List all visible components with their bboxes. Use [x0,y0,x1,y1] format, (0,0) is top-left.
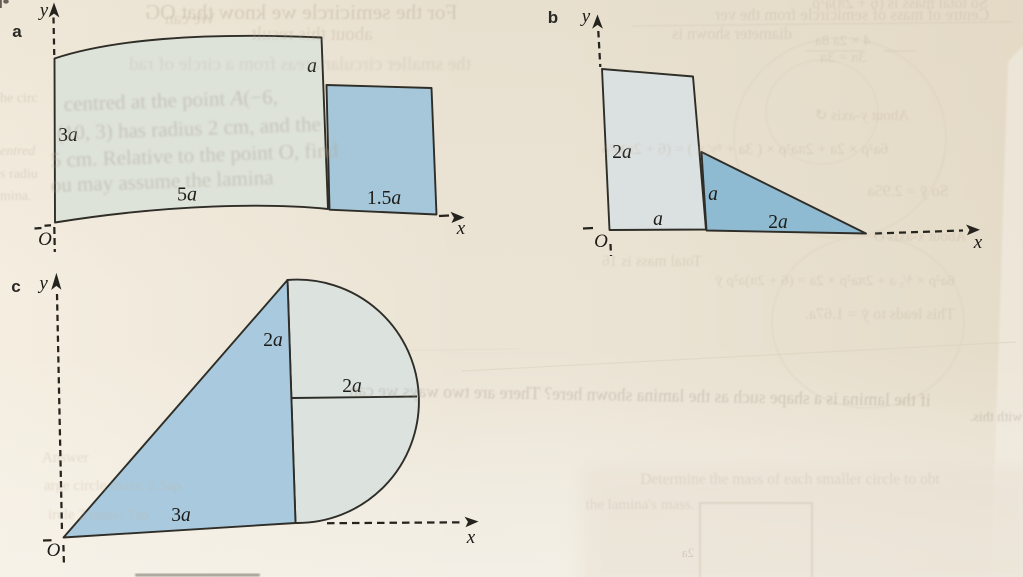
svg-text:diameter shown is: diameter shown is [672,24,792,43]
svg-text:with this.: with this. [970,410,1022,425]
svg-text:About x-axis O: About x-axis O [874,229,967,245]
svg-text:ircle 2 mass: 7aρ: ircle 2 mass: 7aρ [48,507,149,523]
svg-text:mina.: mina. [0,189,32,204]
svg-text:O: O [47,540,61,561]
svg-text:For the semicircle we know tha: For the semicircle we know that OG [145,0,458,24]
svg-text:3a: 3a [171,505,191,526]
svg-text:O: O [594,231,608,252]
svg-text:c: c [11,277,20,296]
svg-text:the lamina's mass.: the lamina's mass. [586,497,695,513]
svg-text:2a: 2a [682,545,695,560]
svg-text:about this result: about this result [251,24,373,45]
svg-text:2a: 2a [263,330,283,351]
svg-text:the smaller circular areas fro: the smaller circular areas from a circle… [129,54,471,75]
svg-text:arge circle mass: 2.5aρ: arge circle mass: 2.5aρ [44,478,181,494]
svg-text:x: x [973,232,983,253]
svg-text:So ȳ = 2.95a: So ȳ = 2.95a [867,183,948,200]
svg-text:O: O [38,229,52,250]
svg-text:y: y [580,6,591,27]
svg-text:Answer: Answer [42,450,89,466]
svg-text:entred: entred [0,144,36,159]
svg-text:y: y [38,0,49,21]
svg-text:s radiu: s radiu [0,167,38,182]
svg-text:6a²ρ × 2a + 2πa²ρ × ( 3a + ⁸ᵃ⁄: 6a²ρ × 2a + 2πa²ρ × ( 3a + ⁸ᵃ⁄₃π ) = (6 … [601,141,888,158]
svg-text:About y-axis ↺: About y-axis ↺ [815,108,909,124]
svg-text:3π = 3π: 3π = 3π [820,50,867,66]
svg-text:he circ: he circ [0,91,38,106]
svg-text:Determine the mass of each sma: Determine the mass of each smaller circl… [640,471,940,488]
svg-text:a: a [708,184,718,205]
svg-text:a: a [653,209,663,230]
svg-text:x: x [456,218,466,239]
svg-text:6a²ρ × ⁴⁄₃ a + 2πa²ρ × 2a = (6: 6a²ρ × ⁴⁄₃ a + 2πa²ρ × 2a = (6 + 2π)a²ρ … [715,273,955,289]
svg-text:Total mass is 16: Total mass is 16 [602,253,702,270]
svg-text:1.5a: 1.5a [367,188,401,209]
svg-text:Centre of mass of semicircle f: Centre of mass of semicircle from the ve… [714,5,989,24]
svg-text:b: b [548,8,558,27]
svg-text:2a: 2a [768,212,788,233]
svg-text:This leads to ȳ = 1.67a.: This leads to ȳ = 1.67a. [805,306,955,323]
svg-text:x: x [466,527,476,548]
svg-text:y: y [37,273,48,294]
svg-text:a: a [12,22,22,41]
svg-text:4 × 2a 8a: 4 × 2a 8a [815,33,871,49]
